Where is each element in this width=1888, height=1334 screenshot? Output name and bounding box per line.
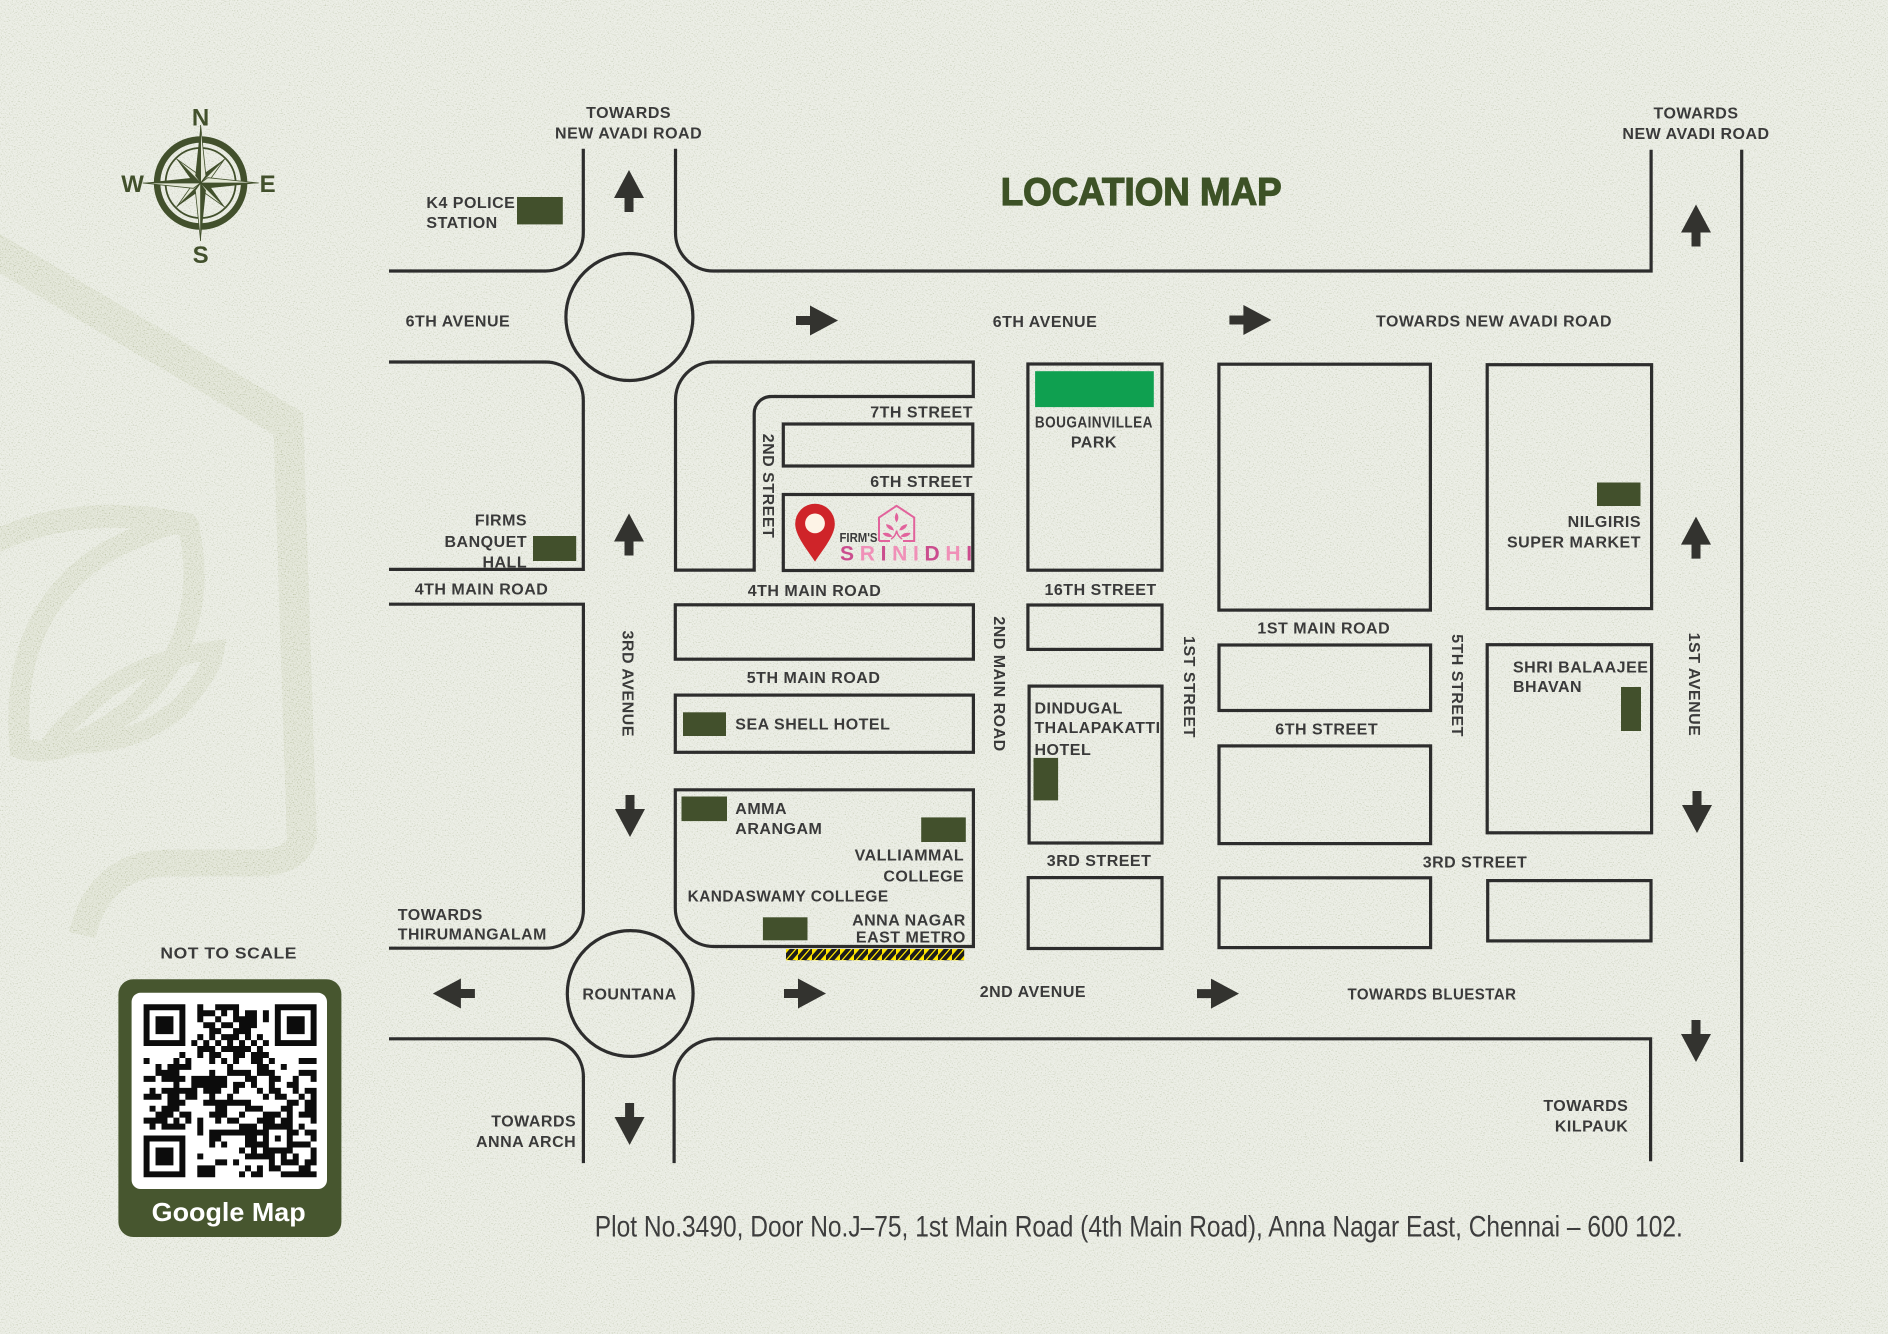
svg-text:16TH STREET: 16TH STREET bbox=[1045, 582, 1157, 599]
svg-text:NILGIRIS: NILGIRIS bbox=[1568, 514, 1641, 531]
svg-text:TOWARDS: TOWARDS bbox=[398, 907, 483, 924]
svg-text:2ND MAIN ROAD: 2ND MAIN ROAD bbox=[990, 616, 1007, 751]
svg-text:NOT TO SCALE: NOT TO SCALE bbox=[160, 946, 297, 963]
svg-text:AMMA: AMMA bbox=[735, 801, 787, 818]
svg-text:Google Map: Google Map bbox=[152, 1197, 306, 1227]
svg-text:KANDASWAMY COLLEGE: KANDASWAMY COLLEGE bbox=[688, 889, 889, 906]
svg-text:THALAPAKATTI: THALAPAKATTI bbox=[1035, 720, 1161, 737]
svg-text:W: W bbox=[121, 171, 144, 198]
svg-text:3RD STREET: 3RD STREET bbox=[1047, 853, 1152, 870]
svg-text:ANNA ARCH: ANNA ARCH bbox=[476, 1134, 576, 1151]
svg-text:PARK: PARK bbox=[1071, 435, 1117, 452]
svg-text:SHRI BALAAJEE: SHRI BALAAJEE bbox=[1513, 660, 1648, 677]
svg-text:Plot No.3490, Door No.J–75, 1s: Plot No.3490, Door No.J–75, 1st Main Roa… bbox=[595, 1210, 1683, 1243]
svg-text:BANQUET: BANQUET bbox=[444, 534, 527, 551]
svg-text:TOWARDS: TOWARDS bbox=[491, 1114, 576, 1131]
svg-text:7TH STREET: 7TH STREET bbox=[870, 405, 973, 422]
svg-text:S: S bbox=[840, 543, 854, 566]
svg-text:1ST AVENUE: 1ST AVENUE bbox=[1685, 633, 1702, 737]
svg-text:FIRMS: FIRMS bbox=[475, 513, 527, 530]
svg-text:ARANGAM: ARANGAM bbox=[735, 821, 822, 838]
svg-text:N: N bbox=[892, 543, 907, 566]
svg-text:H: H bbox=[945, 543, 960, 566]
svg-text:STATION: STATION bbox=[426, 215, 497, 232]
svg-text:1ST STREET: 1ST STREET bbox=[1180, 636, 1197, 738]
svg-text:LOCATION MAP: LOCATION MAP bbox=[1001, 171, 1282, 214]
svg-text:3RD AVENUE: 3RD AVENUE bbox=[619, 631, 636, 737]
svg-text:THIRUMANGALAM: THIRUMANGALAM bbox=[398, 926, 547, 943]
svg-text:TOWARDS NEW AVADI ROAD: TOWARDS NEW AVADI ROAD bbox=[1376, 313, 1612, 330]
svg-text:E: E bbox=[260, 171, 276, 198]
svg-text:3RD STREET: 3RD STREET bbox=[1423, 854, 1528, 871]
svg-text:COLLEGE: COLLEGE bbox=[883, 869, 964, 886]
svg-text:BOUGAINVILLEA: BOUGAINVILLEA bbox=[1035, 414, 1153, 431]
svg-text:D: D bbox=[925, 543, 940, 566]
svg-text:TOWARDS: TOWARDS bbox=[1543, 1098, 1628, 1115]
svg-text:2ND STREET: 2ND STREET bbox=[759, 434, 776, 539]
svg-text:NEW AVADI ROAD: NEW AVADI ROAD bbox=[555, 125, 702, 142]
svg-text:4TH MAIN ROAD: 4TH MAIN ROAD bbox=[415, 581, 549, 598]
svg-text:I: I bbox=[966, 543, 972, 566]
svg-text:N: N bbox=[192, 105, 209, 132]
svg-text:TOWARDS: TOWARDS bbox=[586, 105, 671, 122]
svg-text:HALL: HALL bbox=[482, 555, 527, 572]
svg-text:TOWARDS: TOWARDS bbox=[1654, 105, 1739, 122]
svg-text:ANNA NAGAR: ANNA NAGAR bbox=[852, 912, 966, 929]
svg-text:DINDUGAL: DINDUGAL bbox=[1035, 700, 1123, 717]
svg-text:BHAVAN: BHAVAN bbox=[1513, 679, 1582, 696]
svg-text:TOWARDS BLUESTAR: TOWARDS BLUESTAR bbox=[1348, 986, 1517, 1003]
svg-text:R: R bbox=[860, 543, 875, 566]
svg-text:5TH MAIN ROAD: 5TH MAIN ROAD bbox=[747, 670, 881, 687]
svg-text:6TH AVENUE: 6TH AVENUE bbox=[406, 314, 511, 331]
svg-text:VALLIAMMAL: VALLIAMMAL bbox=[855, 848, 965, 865]
svg-text:I: I bbox=[913, 543, 919, 566]
svg-text:SEA SHELL HOTEL: SEA SHELL HOTEL bbox=[735, 717, 890, 734]
svg-text:4TH MAIN ROAD: 4TH MAIN ROAD bbox=[748, 583, 882, 600]
svg-text:6TH STREET: 6TH STREET bbox=[1275, 722, 1378, 739]
svg-text:I: I bbox=[881, 543, 887, 566]
svg-text:ROUNTANA: ROUNTANA bbox=[582, 986, 676, 1003]
svg-text:6TH STREET: 6TH STREET bbox=[870, 474, 973, 491]
svg-text:KILPAUK: KILPAUK bbox=[1555, 1119, 1628, 1136]
svg-text:2ND AVENUE: 2ND AVENUE bbox=[980, 984, 1086, 1001]
svg-text:1ST MAIN ROAD: 1ST MAIN ROAD bbox=[1257, 621, 1390, 638]
svg-text:NEW AVADI ROAD: NEW AVADI ROAD bbox=[1622, 126, 1769, 143]
svg-text:SUPER MARKET: SUPER MARKET bbox=[1507, 534, 1641, 551]
svg-text:S: S bbox=[193, 242, 209, 269]
svg-text:EAST METRO: EAST METRO bbox=[856, 930, 966, 947]
svg-text:6TH AVENUE: 6TH AVENUE bbox=[993, 314, 1098, 331]
svg-text:K4 POLICE: K4 POLICE bbox=[426, 195, 515, 212]
svg-text:5TH STREET: 5TH STREET bbox=[1448, 634, 1465, 737]
svg-text:HOTEL: HOTEL bbox=[1035, 742, 1092, 759]
